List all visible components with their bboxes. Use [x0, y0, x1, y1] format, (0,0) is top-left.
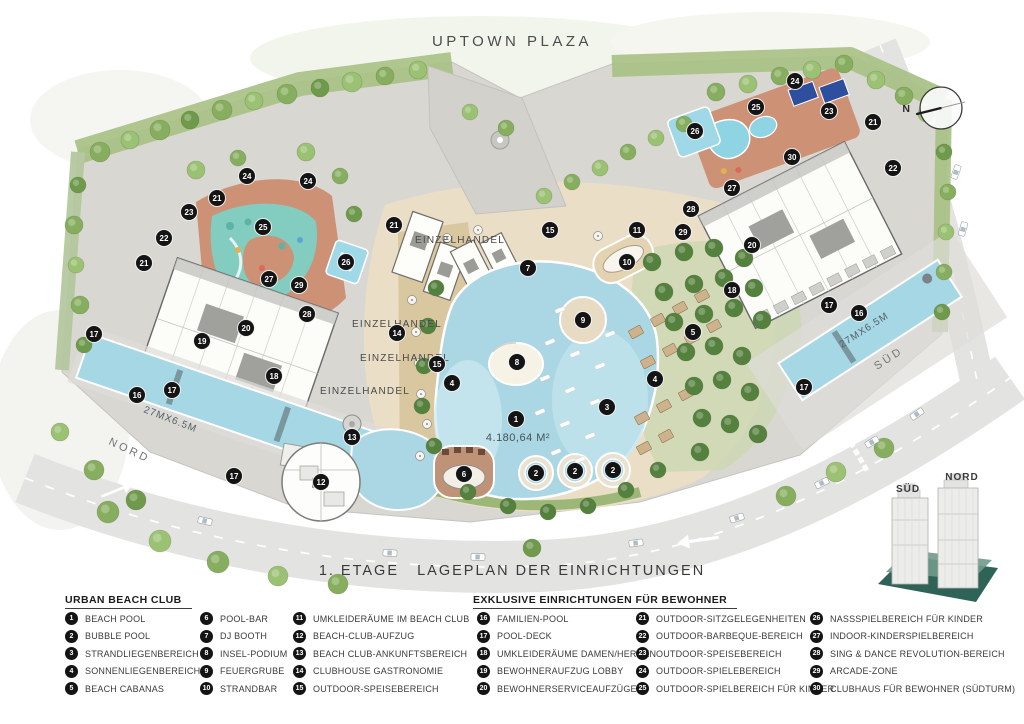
legend-item: 17POOL-DECK: [477, 630, 656, 643]
legend-item: 12BEACH-CLUB-AUFZUG: [293, 630, 469, 643]
legend-label: BEACH CABANAS: [85, 684, 164, 694]
legend-column: 1BEACH POOL2BUBBLE POOL3STRANDLIEGENBERE…: [65, 612, 200, 695]
legend-item: 26NASSSPIELBEREICH FÜR KINDER: [810, 612, 1015, 625]
legend-label: OUTDOOR-SPEISEBEREICH: [313, 684, 439, 694]
legend-label: INDOOR-KINDERSPIELBEREICH: [830, 631, 974, 641]
legend-item: 19BEWOHNERAUFZUG LOBBY: [477, 665, 656, 678]
legend-item: 1BEACH POOL: [65, 612, 200, 625]
legend-number-badge: 6: [200, 612, 213, 625]
legend-number-badge: 24: [636, 665, 649, 678]
legend-label: OUTDOOR-BARBEQUE-BEREICH: [656, 631, 803, 641]
legend-label: BEACH-CLUB-AUFZUG: [313, 631, 414, 641]
legend-item: 29ARCADE-ZONE: [810, 665, 1015, 678]
site-plan-page: EINZELHANDEL EINZELHANDEL EINZELHANDEL E…: [0, 0, 1024, 724]
legend-label: OUTDOOR-SPIELBEREICH FÜR KINDER: [656, 684, 834, 694]
legend-item: 2BUBBLE POOL: [65, 630, 200, 643]
legend-number-badge: 3: [65, 647, 78, 660]
legend-column: 6POOL-BAR7DJ BOOTH8INSEL-PODIUM9FEUERGRU…: [200, 612, 287, 695]
legend-number-badge: 5: [65, 682, 78, 695]
legend-item: 30CLUBHAUS FÜR BEWOHNER (SÜDTURM): [810, 682, 1015, 695]
legend-number-badge: 8: [200, 647, 213, 660]
legend-item: 14CLUBHOUSE GASTRONOMIE: [293, 665, 469, 678]
legend-label: ARCADE-ZONE: [830, 666, 898, 676]
legend-label: FEUERGRUBE: [220, 666, 285, 676]
legend-column: 16FAMILIEN-POOL17POOL-DECK18UMKLEIDERÄUM…: [477, 612, 656, 695]
legend-number-badge: 7: [200, 630, 213, 643]
legend-label: SONNENLIEGENBEREICH: [85, 666, 200, 676]
legend-item: 4SONNENLIEGENBEREICH: [65, 665, 200, 678]
legend-label: INSEL-PODIUM: [220, 649, 287, 659]
legend-label: UMKLEIDERÄUME DAMEN/HERREN: [497, 649, 656, 659]
legend-number-badge: 23: [636, 647, 649, 660]
legend-column: 11UMKLEIDERÄUME IM BEACH CLUB12BEACH-CLU…: [293, 612, 469, 695]
legend-item: 5BEACH CABANAS: [65, 682, 200, 695]
legend-item: 13BEACH CLUB-ANKUNFTSBEREICH: [293, 647, 469, 660]
legend-item: 20BEWOHNERSERVICEAUFZÜGE: [477, 682, 656, 695]
legend-number-badge: 26: [810, 612, 823, 625]
legend-label: CLUBHOUSE GASTRONOMIE: [313, 666, 443, 676]
legend-item: 11UMKLEIDERÄUME IM BEACH CLUB: [293, 612, 469, 625]
legend-item: 8INSEL-PODIUM: [200, 647, 287, 660]
legend-item: 9FEUERGRUBE: [200, 665, 287, 678]
legend-label: NASSSPIELBEREICH FÜR KINDER: [830, 614, 983, 624]
legend-number-badge: 17: [477, 630, 490, 643]
legend-item: 28SING & DANCE REVOLUTION-BEREICH: [810, 647, 1015, 660]
legend-item: 3STRANDLIEGENBEREICH: [65, 647, 200, 660]
legend-number-badge: 16: [477, 612, 490, 625]
legend-item: 6POOL-BAR: [200, 612, 287, 625]
legend-column: 26NASSSPIELBEREICH FÜR KINDER27INDOOR-KI…: [810, 612, 1015, 695]
legend-item: 21OUTDOOR-SITZGELEGENHEITEN: [636, 612, 834, 625]
legend-item: 25OUTDOOR-SPIELBEREICH FÜR KINDER: [636, 682, 834, 695]
legend-item: 24OUTDOOR-SPIELEBEREICH: [636, 665, 834, 678]
legend-number-badge: 18: [477, 647, 490, 660]
legend-number-badge: 19: [477, 665, 490, 678]
legend-label: POOL-DECK: [497, 631, 552, 641]
legend-item: 27INDOOR-KINDERSPIELBEREICH: [810, 630, 1015, 643]
legend-number-badge: 30: [810, 682, 823, 695]
legend-item: 22OUTDOOR-BARBEQUE-BEREICH: [636, 630, 834, 643]
legend-number-badge: 28: [810, 647, 823, 660]
legend-label: SING & DANCE REVOLUTION-BEREICH: [830, 649, 1005, 659]
legend-label: FAMILIEN-POOL: [497, 614, 569, 624]
legend-number-badge: 11: [293, 612, 306, 625]
legend-number-badge: 10: [200, 682, 213, 695]
legend-label: OUTDOOR-SPIELEBEREICH: [656, 666, 781, 676]
legend-number-badge: 29: [810, 665, 823, 678]
legend-item: 18UMKLEIDERÄUME DAMEN/HERREN: [477, 647, 656, 660]
legend-item: 23OUTDOOR-SPEISEBEREICH: [636, 647, 834, 660]
legend-label: STRANDLIEGENBEREICH: [85, 649, 199, 659]
legend: URBAN BEACH CLUB EXKLUSIVE EINRICHTUNGEN…: [0, 0, 1024, 724]
legend-number-badge: 12: [293, 630, 306, 643]
legend-number-badge: 22: [636, 630, 649, 643]
legend-label: OUTDOOR-SPEISEBEREICH: [656, 649, 782, 659]
legend-label: CLUBHAUS FÜR BEWOHNER (SÜDTURM): [830, 684, 1015, 694]
legend-label: OUTDOOR-SITZGELEGENHEITEN: [656, 614, 806, 624]
legend-label: BEACH POOL: [85, 614, 146, 624]
legend-number-badge: 2: [65, 630, 78, 643]
legend-column: 21OUTDOOR-SITZGELEGENHEITEN22OUTDOOR-BAR…: [636, 612, 834, 695]
legend-label: STRANDBAR: [220, 684, 277, 694]
legend-number-badge: 13: [293, 647, 306, 660]
legend-number-badge: 4: [65, 665, 78, 678]
legend-number-badge: 9: [200, 665, 213, 678]
legend-item: 7DJ BOOTH: [200, 630, 287, 643]
legend-heading-urban-beach-club: URBAN BEACH CLUB: [65, 594, 192, 609]
legend-label: DJ BOOTH: [220, 631, 267, 641]
legend-item: 16FAMILIEN-POOL: [477, 612, 656, 625]
legend-label: BUBBLE POOL: [85, 631, 150, 641]
legend-item: 15OUTDOOR-SPEISEBEREICH: [293, 682, 469, 695]
legend-item: 10STRANDBAR: [200, 682, 287, 695]
legend-heading-exclusive-residents: EXKLUSIVE EINRICHTUNGEN FÜR BEWOHNER: [473, 594, 737, 609]
legend-label: UMKLEIDERÄUME IM BEACH CLUB: [313, 614, 469, 624]
legend-label: BEWOHNERAUFZUG LOBBY: [497, 666, 624, 676]
legend-label: POOL-BAR: [220, 614, 268, 624]
legend-label: BEWOHNERSERVICEAUFZÜGE: [497, 684, 637, 694]
legend-number-badge: 15: [293, 682, 306, 695]
legend-number-badge: 20: [477, 682, 490, 695]
legend-number-badge: 25: [636, 682, 649, 695]
legend-label: BEACH CLUB-ANKUNFTSBEREICH: [313, 649, 467, 659]
legend-number-badge: 1: [65, 612, 78, 625]
legend-number-badge: 27: [810, 630, 823, 643]
legend-number-badge: 14: [293, 665, 306, 678]
legend-number-badge: 21: [636, 612, 649, 625]
